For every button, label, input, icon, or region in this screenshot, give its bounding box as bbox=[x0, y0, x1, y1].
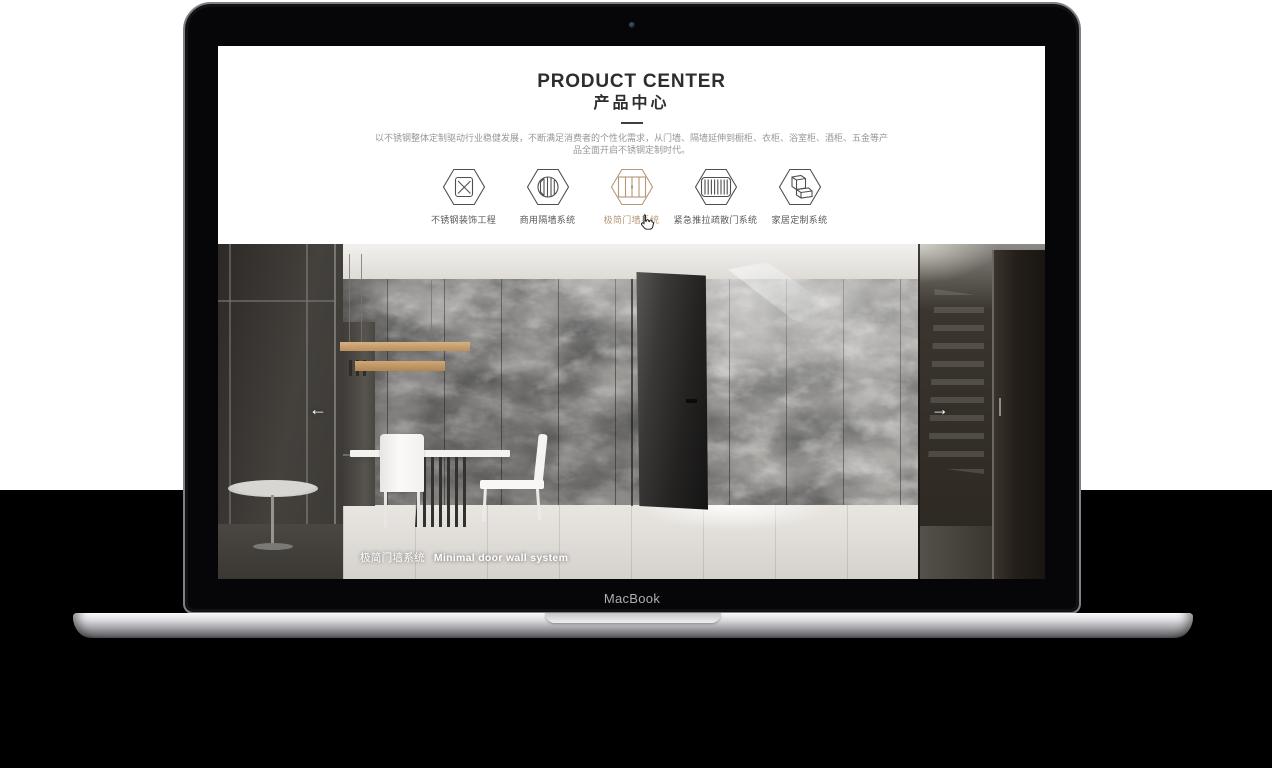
scene-ceiling bbox=[343, 244, 918, 280]
macbook-mockup: PRODUCT CENTER 产品中心 以不锈钢整体定制驱动行业稳健发展，不断满… bbox=[183, 2, 1081, 614]
hex-door-wall-icon bbox=[590, 168, 674, 206]
hex-cabinet-icon bbox=[758, 168, 842, 206]
page-title-en: PRODUCT CENTER bbox=[218, 46, 1045, 93]
hex-round-partition-icon bbox=[506, 168, 590, 206]
intro-line-2: 品全面开启不锈钢定制时代。 bbox=[218, 144, 1045, 156]
scene-pendant-light bbox=[340, 342, 470, 351]
scene-pendant-wire bbox=[431, 280, 432, 342]
scene-chair-profile bbox=[480, 434, 548, 523]
scene-main-room bbox=[343, 244, 918, 579]
hero-carousel: 极简门墙系统Minimal door wall system ← → bbox=[218, 244, 1045, 579]
category-item-home-custom[interactable]: 家居定制系统 bbox=[758, 168, 842, 226]
scene-side-table-base bbox=[253, 543, 293, 550]
title-divider bbox=[621, 122, 643, 124]
intro-line-1: 以不锈钢整体定制驱动行业稳健发展，不断满足消费者的个性化需求，从门墙、隔墙延伸到… bbox=[218, 132, 1045, 144]
laptop-base bbox=[73, 613, 1193, 638]
category-label: 极简门墙系统 bbox=[590, 213, 674, 226]
scene-left-floor bbox=[218, 524, 343, 579]
scene-partition-mullion bbox=[334, 244, 336, 546]
hex-panel-x-icon bbox=[422, 168, 506, 206]
scene-chair-back bbox=[533, 434, 547, 487]
scene-chair-leg bbox=[536, 489, 541, 520]
macbook-brand-label: MacBook bbox=[185, 591, 1079, 606]
scene-chair-leg bbox=[417, 492, 420, 528]
photo-caption-en: Minimal door wall system bbox=[434, 552, 568, 564]
category-item-minimal-door-wall[interactable]: 极简门墙系统 bbox=[590, 168, 674, 226]
webcam-icon bbox=[629, 22, 635, 28]
category-label: 商用隔墙系统 bbox=[506, 213, 590, 226]
next-arrow-button[interactable]: → bbox=[928, 397, 952, 421]
page-title-cn: 产品中心 bbox=[218, 94, 1045, 114]
laptop-base-notch bbox=[545, 613, 721, 623]
scene-door-jamb bbox=[631, 279, 633, 506]
scene-pendant-wire bbox=[361, 254, 362, 342]
laptop-screen: PRODUCT CENTER 产品中心 以不锈钢整体定制驱动行业稳健发展，不断满… bbox=[218, 46, 1045, 579]
scene-chair-seat bbox=[480, 480, 544, 489]
scene-staircase bbox=[928, 289, 984, 474]
scene-partition-mullion bbox=[229, 244, 231, 546]
scene-sliding-door bbox=[992, 250, 1045, 579]
category-label: 不锈钢装饰工程 bbox=[422, 213, 506, 226]
category-item-commercial-partition[interactable]: 商用隔墙系统 bbox=[506, 168, 590, 226]
scene-chair-leg bbox=[384, 492, 387, 528]
photo-caption-cn: 极简门墙系统 bbox=[360, 552, 425, 564]
scene-partition-rail bbox=[218, 300, 336, 302]
scene-sliding-door-handle bbox=[999, 398, 1001, 416]
scene-door-handle bbox=[686, 399, 697, 403]
scene-pendant-light bbox=[355, 361, 445, 371]
prev-arrow-button[interactable]: ← bbox=[306, 397, 330, 421]
category-item-stainless-decoration[interactable]: 不锈钢装饰工程 bbox=[422, 168, 506, 226]
site-header: PRODUCT CENTER 产品中心 以不锈钢整体定制驱动行业稳健发展，不断满… bbox=[218, 46, 1045, 244]
scene-partition-mullion bbox=[306, 244, 308, 546]
scene-pendant-wire bbox=[349, 254, 350, 342]
category-label: 紧急推拉疏散门系统 bbox=[674, 213, 758, 226]
category-item-emergency-evac-door[interactable]: 紧急推拉疏散门系统 bbox=[674, 168, 758, 226]
scene-chair-back bbox=[380, 434, 424, 492]
scene-side-table-stem bbox=[271, 495, 274, 545]
hex-evac-door-icon bbox=[674, 168, 758, 206]
category-label: 家居定制系统 bbox=[758, 213, 842, 226]
photo-caption: 极简门墙系统Minimal door wall system bbox=[360, 550, 568, 565]
scene-chair-back-view bbox=[380, 434, 424, 528]
intro-paragraph: 以不锈钢整体定制驱动行业稳健发展，不断满足消费者的个性化需求，从门墙、隔墙延伸到… bbox=[218, 132, 1045, 156]
category-nav: 不锈钢装饰工程 商用隔墙系统 bbox=[218, 168, 1045, 226]
scene-open-door bbox=[635, 272, 708, 512]
hand-cursor-icon bbox=[638, 213, 655, 231]
scene-chair-leg bbox=[482, 489, 487, 522]
